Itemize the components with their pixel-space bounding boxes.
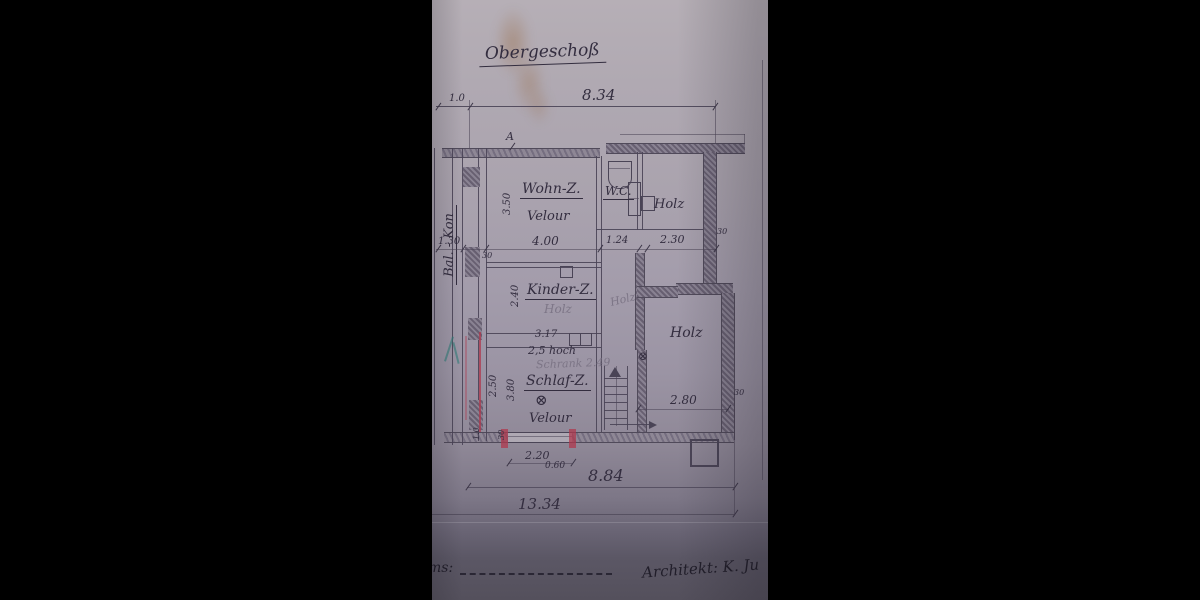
red-correction-line — [465, 336, 467, 420]
dim-wc-width: 1.24 — [606, 236, 628, 246]
red-window-mark — [569, 429, 576, 448]
schrank-height-note: 2,5 hoch — [528, 345, 576, 356]
room-label-kinderzimmer: Kinder-Z. — [525, 283, 596, 300]
dim-line-total — [432, 514, 735, 515]
stairs-tread — [604, 418, 627, 419]
wall-top-left — [442, 148, 600, 158]
room-label-wc: W.C. — [603, 185, 634, 200]
wall-right-upper — [703, 152, 717, 286]
signature-dashed-line — [460, 573, 612, 575]
wall-wohn-kinder — [486, 267, 601, 268]
dim-schlaf-d2: 3.80 — [507, 373, 517, 401]
stairs-direction-triangle — [609, 367, 621, 377]
dim-schlaf-d1: 2.50 — [489, 369, 499, 397]
window-center-line — [508, 436, 572, 437]
balcony-rail-line — [462, 148, 463, 445]
page-title: Obergeschoß — [479, 42, 606, 67]
schrank-width: 3.17 — [535, 330, 557, 340]
red-correction-line — [479, 332, 481, 432]
dim-extension — [469, 100, 470, 148]
floor-label-kinderzimmer-pencil: Holz — [544, 303, 572, 315]
balcony-edge-line — [434, 148, 435, 445]
room-label-holz-right: Holz — [670, 326, 703, 340]
stairs-tread — [604, 394, 627, 395]
dim-bottom-small: 1.0 — [473, 424, 481, 440]
dim-line-top — [436, 106, 716, 107]
wall-top-right — [606, 143, 745, 154]
dim-top-offset: 1.0 — [449, 94, 465, 104]
dim-extension — [734, 398, 735, 516]
room-label-wohnzimmer: Wohn-Z. — [520, 182, 583, 199]
stairs-tread — [604, 378, 627, 379]
dim-kinder-depth: 2.40 — [511, 279, 521, 307]
dim-extension — [715, 100, 716, 144]
wall-marker-a: A — [506, 131, 514, 142]
toilet-tank-line — [609, 168, 630, 169]
wall-pier — [465, 247, 480, 277]
dim-wall30: 30 — [734, 389, 744, 397]
wall-wc-right — [642, 152, 643, 230]
schrank-cell — [580, 333, 592, 346]
wall-corridor-left — [596, 156, 597, 432]
balcony-rail-line — [452, 148, 453, 445]
floor-label-schlafzimmer: Velour — [529, 412, 571, 425]
wall-wc-bottom — [596, 229, 703, 230]
dim-balcony-width: 1.30 — [438, 237, 460, 247]
stairs-direction-arrow — [649, 421, 657, 429]
paper-edge-line — [762, 60, 763, 480]
room-label-holz-top: Holz — [654, 198, 684, 211]
floor-label-wohnzimmer: Velour — [527, 210, 569, 223]
dim-tick — [570, 459, 576, 467]
dim-line-holz-right — [637, 409, 729, 410]
house-left-wall-line — [486, 148, 487, 441]
lamp-symbol: ⊗ — [638, 350, 648, 362]
dim-wall30: 30 — [717, 228, 727, 236]
stairs-tread — [604, 410, 627, 411]
stairs-tread — [604, 386, 627, 387]
footer-left-label: ms: — [432, 561, 453, 575]
stairs-rail — [627, 366, 628, 430]
dim-span-total: 13.34 — [518, 497, 561, 512]
dim-span-inner: 8.84 — [588, 468, 624, 484]
paper-crease — [432, 522, 768, 523]
architect-signature: Architekt: K. Ju — [642, 554, 768, 580]
floor-plan-photo: Obergeschoß 1.0 8.34 A Bal. - Kon — [432, 0, 768, 600]
wall-corridor-left — [601, 156, 602, 432]
wall-holz-top — [637, 286, 678, 298]
schrank-pencil-note: Schrank 2.49 — [536, 357, 611, 371]
floor-label-corridor-pencil: Holz — [609, 291, 636, 308]
dim-line-mid — [436, 249, 716, 250]
stairs-rail — [604, 366, 605, 430]
dim-wall30: 30 — [498, 424, 506, 440]
wall-pier — [463, 167, 480, 187]
dim-window-width: 2.20 — [525, 450, 550, 461]
window-opening — [508, 432, 572, 443]
teal-correction-mark — [452, 342, 459, 364]
dim-wohn-depth: 3.50 — [503, 187, 513, 215]
stairs-direction-line — [610, 424, 650, 425]
chimney-box — [690, 439, 719, 467]
dim-holz-right-width: 2.80 — [670, 394, 697, 406]
kinder-wall-detail — [560, 266, 573, 278]
holz-shelf — [641, 196, 655, 211]
wall-wohn-kinder — [486, 262, 601, 263]
dim-holz-top-width: 2.30 — [660, 234, 685, 245]
dim-line-top-right — [620, 134, 745, 135]
dim-line-inner — [467, 487, 735, 488]
stairs-tread — [604, 402, 627, 403]
dim-wall30: 30 — [482, 252, 492, 260]
dim-wohn-width: 4.00 — [532, 235, 559, 247]
lamp-symbol: ⊗ — [535, 393, 548, 408]
wall-right-lower — [721, 293, 735, 440]
room-label-schlafzimmer: Schlaf-Z. — [524, 374, 591, 391]
dim-top-span: 8.34 — [582, 88, 615, 103]
dim-window-height: 0.60 — [545, 462, 565, 471]
